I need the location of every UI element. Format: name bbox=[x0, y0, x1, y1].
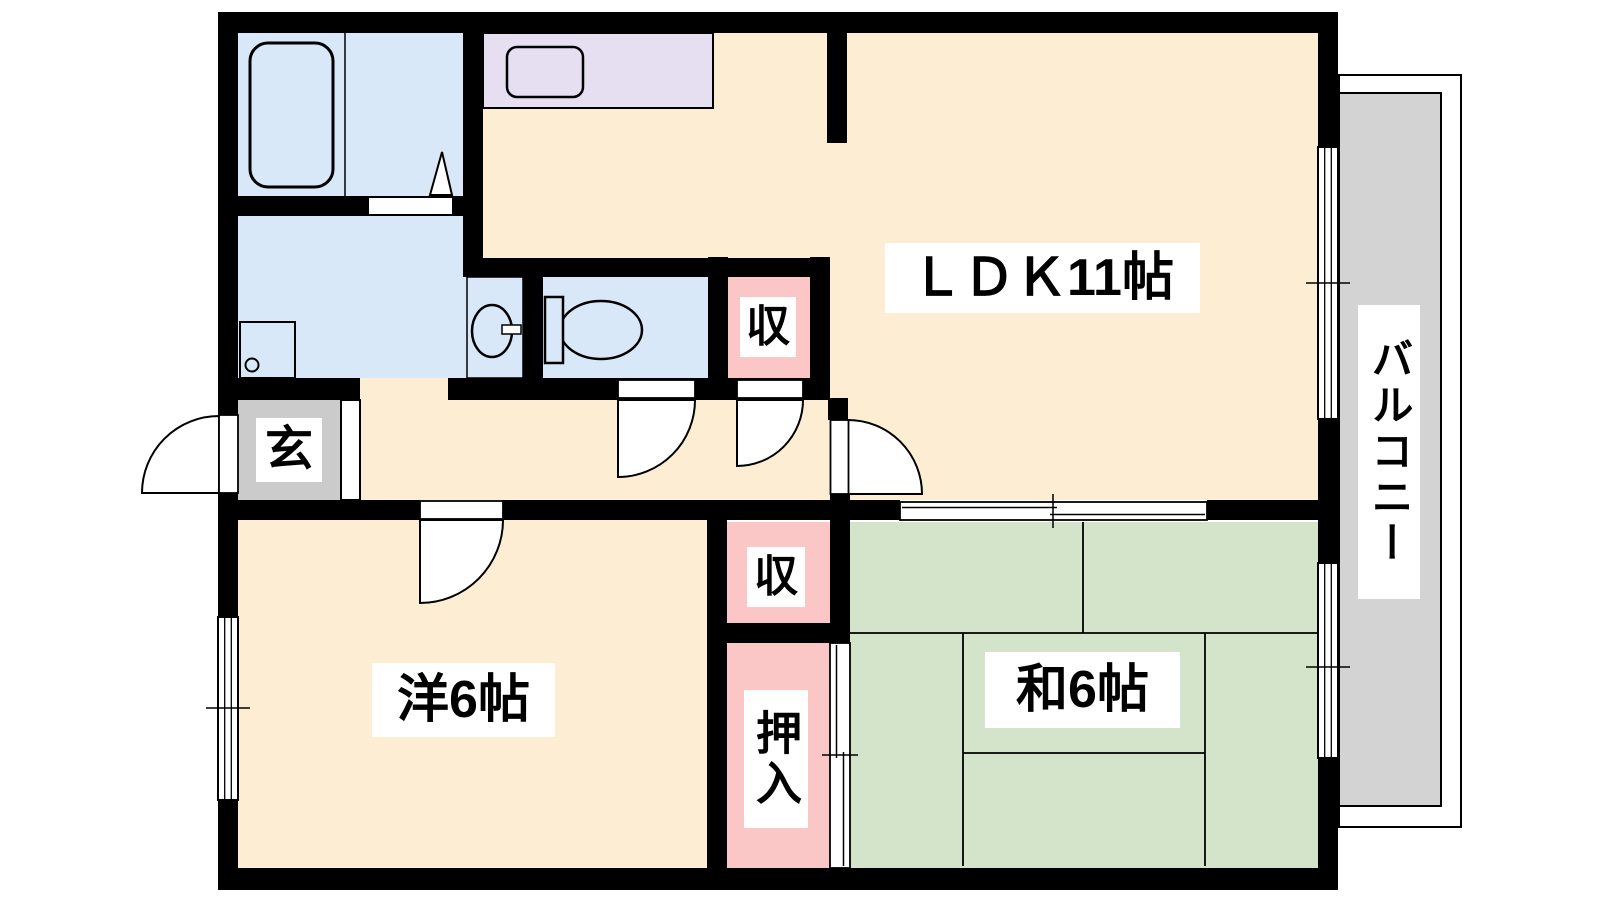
ldk-japanese-sliding-door bbox=[900, 494, 1207, 528]
bathroom-door-mark bbox=[430, 152, 452, 195]
bathtub bbox=[250, 43, 333, 187]
washing-machine-pan bbox=[240, 322, 295, 378]
oshiire-sliding-door bbox=[822, 643, 858, 868]
closet-upper-door bbox=[737, 380, 803, 466]
balcony-label: バルコニー bbox=[1358, 305, 1420, 599]
closet-lower-label: 収 bbox=[747, 547, 805, 607]
toilet bbox=[545, 297, 642, 363]
washbasin-vanity bbox=[467, 277, 523, 378]
western-room-label: 洋6帖 bbox=[372, 663, 555, 737]
floor-plan: ＬＤＫ11帖 洋6帖 和6帖 玄 収 収 押入 バルコニー bbox=[0, 0, 1600, 900]
ldk-hall-door bbox=[831, 420, 923, 494]
entrance-label: 玄 bbox=[256, 418, 322, 482]
japanese-room-label: 和6帖 bbox=[985, 652, 1180, 728]
entrance-partition bbox=[341, 400, 360, 500]
toilet-door bbox=[618, 380, 695, 477]
kitchen-counter bbox=[483, 33, 713, 108]
western-room-door bbox=[420, 501, 503, 603]
ldk-label: ＬＤＫ11帖 bbox=[885, 243, 1200, 313]
entrance-door bbox=[142, 415, 238, 493]
closet-upper-label: 収 bbox=[740, 297, 796, 357]
oshiire-label: 押入 bbox=[744, 690, 808, 828]
western-room-window bbox=[206, 617, 250, 800]
japanese-room-balcony-window bbox=[1306, 563, 1350, 758]
ldk-balcony-window bbox=[1306, 147, 1350, 419]
